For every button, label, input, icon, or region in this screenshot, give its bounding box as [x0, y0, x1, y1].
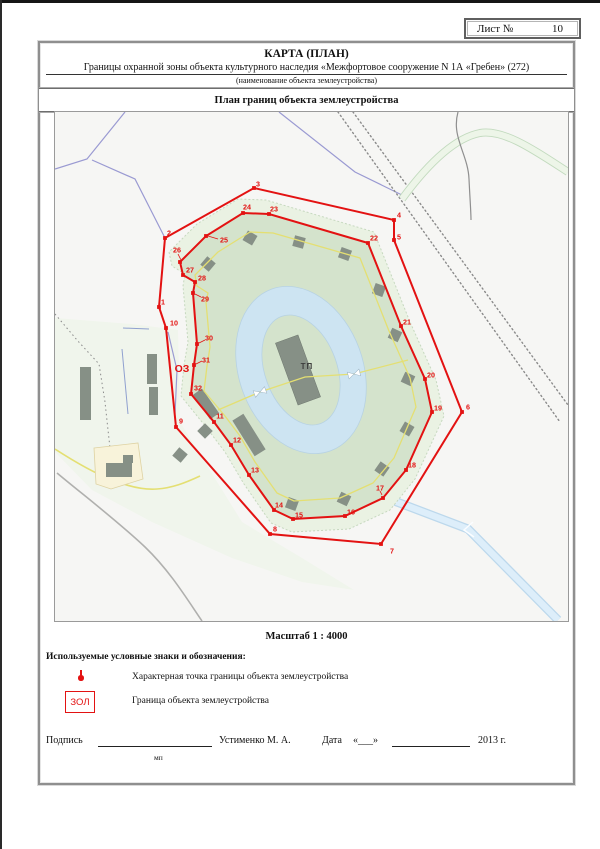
plan-map: ТП12345678910111213141516171819202122232…	[54, 111, 569, 622]
plan-title-band: План границ объекта землеустройства	[39, 88, 574, 112]
svg-text:1: 1	[161, 298, 165, 307]
plan-map-svg: ТП12345678910111213141516171819202122232…	[55, 112, 568, 621]
sheet-label: Лист №	[477, 23, 513, 35]
sheet-number: 10	[552, 23, 563, 35]
main-frame: КАРТА (ПЛАН) Границы охранной зоны объек…	[38, 41, 575, 785]
tp-label: ТП	[301, 362, 314, 371]
svg-text:13: 13	[251, 466, 259, 475]
svg-text:4: 4	[397, 211, 401, 220]
boundary-point-icon	[76, 670, 86, 683]
svg-text:10: 10	[170, 319, 178, 328]
oz-label: ОЗ	[175, 363, 190, 375]
date-blank-line	[392, 746, 470, 747]
legend-item-point: Характерная точка границы объекта землеу…	[132, 672, 348, 682]
svg-text:3: 3	[256, 180, 260, 189]
svg-text:27: 27	[186, 266, 194, 275]
building	[123, 455, 133, 463]
svg-text:11: 11	[216, 412, 224, 421]
date-year: 2013 г.	[478, 735, 506, 746]
svg-text:14: 14	[275, 501, 283, 510]
svg-text:16: 16	[347, 508, 355, 517]
svg-text:20: 20	[427, 371, 435, 380]
svg-text:24: 24	[243, 203, 251, 212]
svg-text:7: 7	[390, 547, 394, 556]
building	[149, 387, 158, 415]
zol-boundary-icon: ЗОЛ	[65, 691, 95, 713]
svg-text:25: 25	[220, 236, 228, 245]
object-name-line: Границы охранной зоны объекта культурног…	[46, 62, 567, 75]
svg-text:6: 6	[466, 403, 470, 412]
building	[80, 367, 91, 420]
svg-text:28: 28	[198, 274, 206, 283]
date-label: Дата	[322, 735, 342, 746]
object-name-note: (наименование объекта землеустройства)	[40, 76, 573, 85]
svg-text:12: 12	[233, 436, 241, 445]
svg-text:2: 2	[167, 229, 171, 238]
svg-text:5: 5	[397, 233, 401, 242]
svg-text:17: 17	[376, 484, 384, 493]
svg-text:31: 31	[202, 356, 210, 365]
building	[106, 463, 132, 477]
signature-label: Подпись	[46, 735, 83, 746]
svg-text:21: 21	[403, 318, 411, 327]
sheet-number-box: Лист № 10	[464, 18, 581, 39]
date-day-blank: «___»	[353, 735, 378, 746]
legend-heading: Используемые условные знаки и обозначени…	[46, 652, 246, 662]
svg-text:9: 9	[179, 417, 183, 426]
svg-text:30: 30	[205, 334, 213, 343]
signature-blank-line	[98, 746, 212, 747]
legend-item-boundary: Граница объекта землеустройства	[132, 696, 269, 706]
scale-text: Масштаб 1 : 4000	[40, 631, 573, 642]
signature-name: Устименко М. А.	[219, 735, 291, 746]
stamp-placeholder: мп	[154, 753, 163, 762]
page-top-border	[0, 0, 600, 3]
map-layers: ТП12345678910111213141516171819202122232…	[55, 112, 568, 621]
svg-text:19: 19	[434, 404, 442, 413]
svg-text:15: 15	[295, 511, 303, 520]
svg-text:18: 18	[408, 461, 416, 470]
svg-text:23: 23	[270, 205, 278, 214]
document-page: Лист № 10 КАРТА (ПЛАН) Границы охранной …	[0, 0, 600, 849]
svg-text:22: 22	[370, 234, 378, 243]
building	[147, 354, 157, 384]
svg-text:8: 8	[273, 525, 277, 534]
document-title: КАРТА (ПЛАН)	[40, 48, 573, 60]
svg-text:26: 26	[173, 246, 181, 255]
page-left-border	[0, 0, 2, 849]
svg-text:29: 29	[201, 295, 209, 304]
svg-text:32: 32	[194, 384, 202, 393]
